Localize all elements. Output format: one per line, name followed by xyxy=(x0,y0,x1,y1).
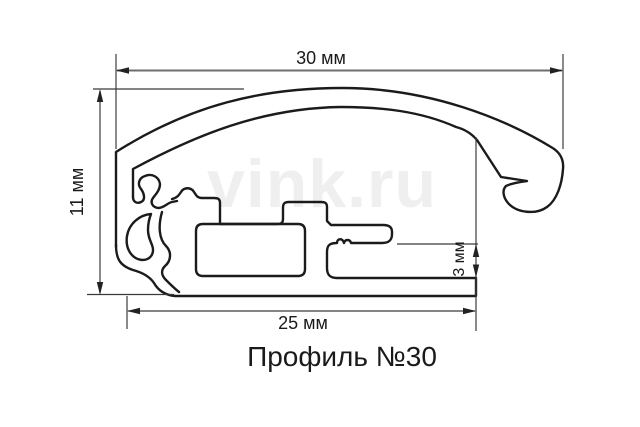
mushroom-channel-path xyxy=(133,175,177,208)
dimension-3mm: 3 мм xyxy=(397,241,479,277)
dimension-label-25mm: 25 мм xyxy=(278,313,328,333)
drawing-page: vink.ru 30 мм xyxy=(0,0,640,427)
profile-drawing: vink.ru 30 мм xyxy=(0,0,640,427)
arrowhead-bottom xyxy=(473,265,479,278)
arrowhead-bottom xyxy=(97,282,103,295)
stem-channel-path xyxy=(160,212,179,292)
arrowhead-top xyxy=(473,244,479,257)
drawing-title: Профиль №30 xyxy=(247,341,437,372)
arrowhead-top xyxy=(97,89,103,102)
arrowhead-left xyxy=(127,308,140,314)
dimension-label-11mm: 11 мм xyxy=(67,168,87,216)
arrowhead-right xyxy=(463,308,476,314)
watermark-text: vink.ru xyxy=(207,146,437,222)
pocket-channel-path xyxy=(127,214,153,260)
dimension-30mm: 30 мм xyxy=(116,48,563,149)
arrowhead-right xyxy=(550,67,563,73)
left-chamber-path xyxy=(196,224,305,276)
dimension-label-3mm: 3 мм xyxy=(451,241,468,276)
dimension-label-30mm: 30 мм xyxy=(296,48,346,68)
arrowhead-left xyxy=(116,67,129,73)
